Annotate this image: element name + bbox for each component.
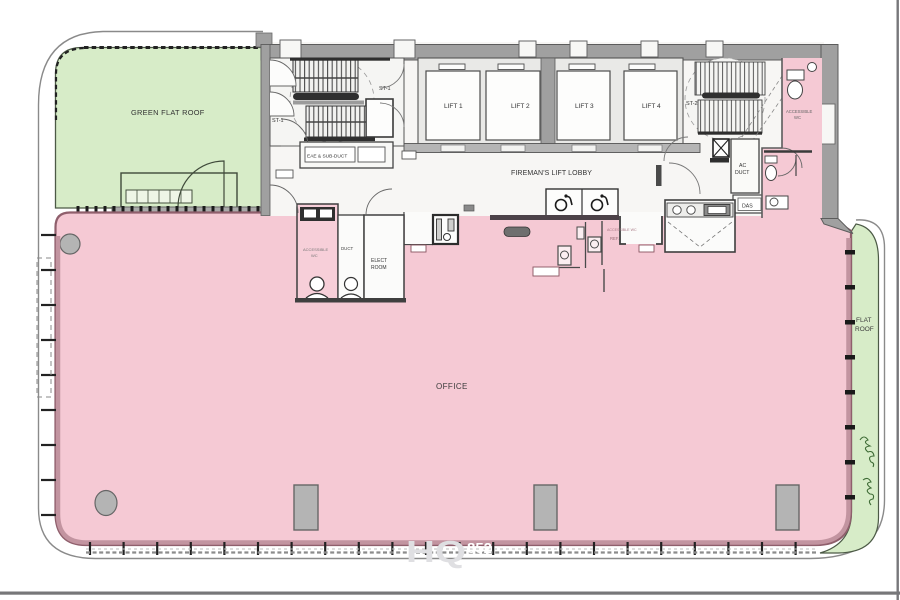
svg-text:ACCESSIBLE: ACCESSIBLE [303,247,328,252]
svg-text:WC: WC [311,253,318,258]
svg-text:HQ: HQ [406,534,466,569]
svg-text:GREEN FLAT ROOF: GREEN FLAT ROOF [131,108,205,117]
svg-text:ACCESSIBLE: ACCESSIBLE [786,109,813,114]
svg-text:ST-2: ST-2 [686,101,698,107]
svg-text:AC: AC [739,163,746,169]
svg-text:EAE & SUB-DUCT: EAE & SUB-DUCT [307,154,347,160]
svg-text:ROOF: ROOF [855,326,874,333]
svg-text:ACCESSIBLE WC: ACCESSIBLE WC [607,228,637,232]
svg-text:LIFT 3: LIFT 3 [575,103,594,110]
svg-text:852: 852 [467,540,492,557]
svg-text:ROOM: ROOM [371,265,387,271]
svg-text:DUCT: DUCT [735,170,750,176]
svg-text:ST-1: ST-1 [379,86,391,92]
svg-text:DUCT: DUCT [341,246,354,251]
svg-text:ELECT: ELECT [371,258,387,264]
svg-text:DAS: DAS [742,204,753,210]
svg-text:FIREMAN'S LIFT LOBBY: FIREMAN'S LIFT LOBBY [511,170,592,177]
svg-text:LIFT 4: LIFT 4 [642,103,661,110]
svg-text:REF.: REF. [610,236,619,241]
svg-text:WC: WC [794,115,801,120]
svg-text:OFFICE: OFFICE [436,382,468,391]
svg-text:LIFT 2: LIFT 2 [511,103,530,110]
svg-text:FLAT: FLAT [856,317,871,324]
svg-text:LIFT 1: LIFT 1 [444,103,463,110]
